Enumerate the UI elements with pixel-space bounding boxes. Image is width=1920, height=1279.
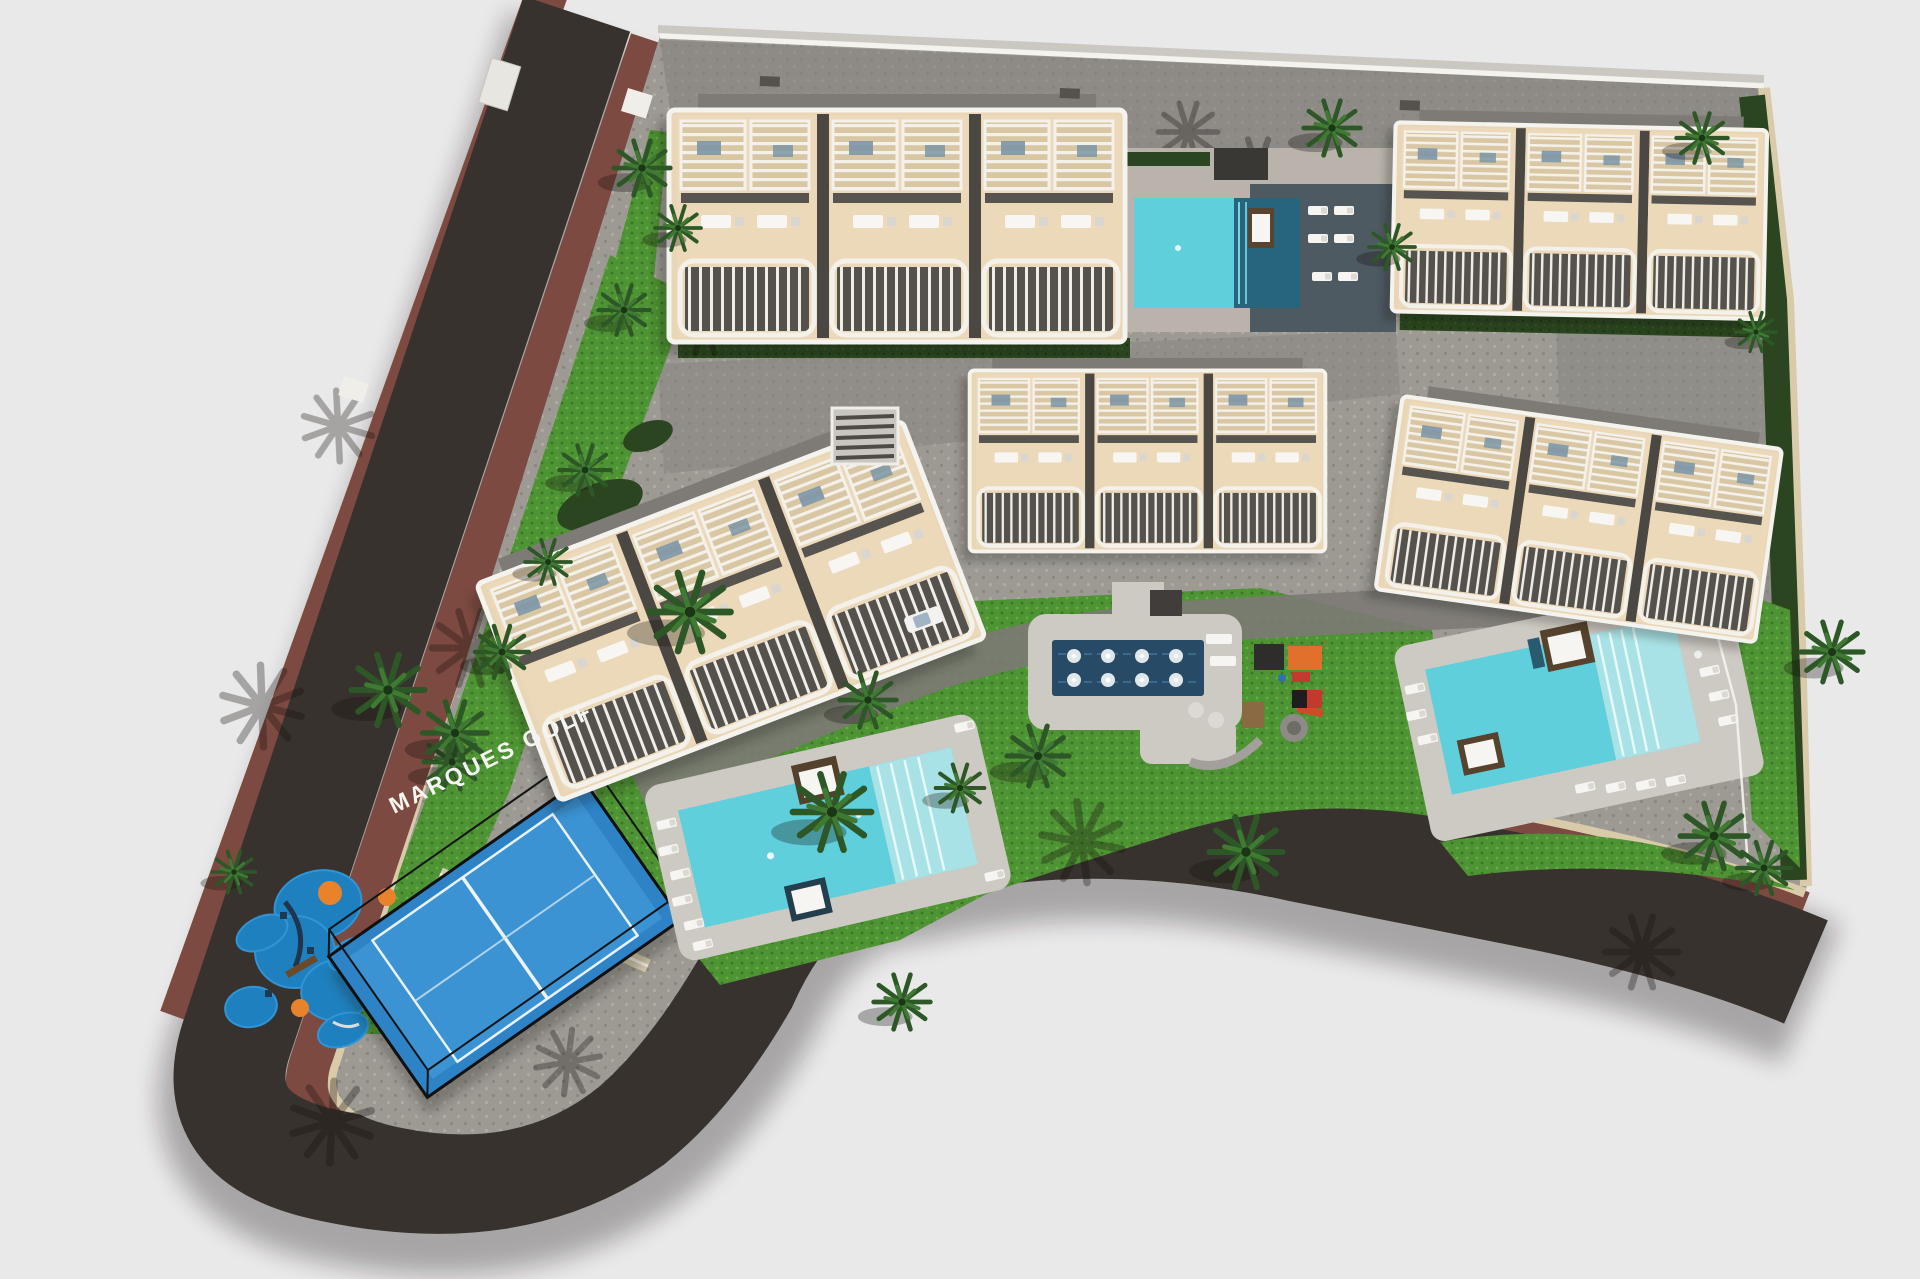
bench-2 [1210,656,1236,666]
building-block-1 [658,94,1125,354]
street-furniture [1400,100,1420,111]
water-sparkle [1175,245,1181,251]
site-plan-svg: MARQUES GOLF [0,0,1920,1279]
play-disc-orange-1 [318,881,342,905]
pergola-small [1150,590,1182,616]
play-dot-blue [1278,674,1286,682]
pool-pergola [1214,148,1268,180]
play-canopy-orange [1288,646,1322,670]
bench-1 [1206,634,1232,644]
spa-seat-1 [1188,702,1204,718]
street-furniture [1060,88,1080,99]
play-mat-black [1292,690,1307,708]
building-structure [669,94,1125,342]
play-disc-orange-2 [378,888,396,906]
spa-seat-2 [1208,712,1224,728]
play-cube-3 [265,990,272,997]
play-cube-2 [307,947,314,954]
play-module-red [1292,672,1310,682]
building-structure [970,358,1326,551]
pool-top-water [1134,198,1234,308]
wood-tower [1242,702,1264,728]
spiral-slide-center [1287,721,1301,735]
pool-top-area [1098,148,1396,332]
play-mat-red [1307,690,1322,708]
play-canopy-dark [1254,644,1284,670]
street-furniture [760,76,780,87]
play-cube-1 [280,912,287,919]
site-plan-render: MARQUES GOLF [0,0,1920,1279]
play-disc-orange-3 [291,999,309,1017]
building-block-4 [961,358,1325,561]
pool-daybed [1252,214,1270,242]
fountain-basin [1052,640,1204,696]
